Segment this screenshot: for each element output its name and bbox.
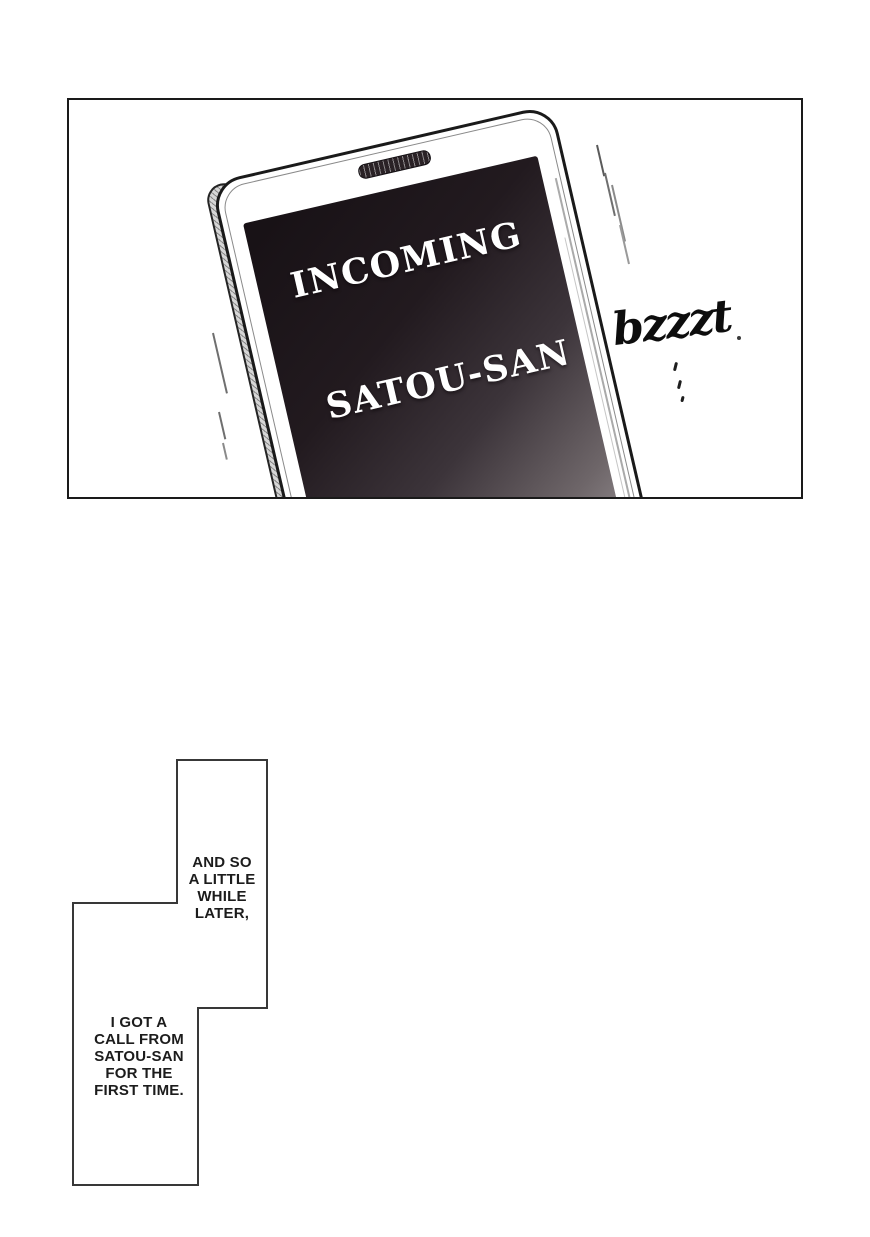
caption-box-shape <box>73 760 267 1185</box>
caption-text-later: AND SO A LITTLE WHILE LATER, <box>189 854 256 922</box>
manga-page: INCOMING SATOU-SAN bzzzt AND SO A LITTLE… <box>0 0 870 1237</box>
caption-text-first-call: I GOT A CALL FROM SATOU-SAN FOR THE FIRS… <box>94 1014 184 1099</box>
